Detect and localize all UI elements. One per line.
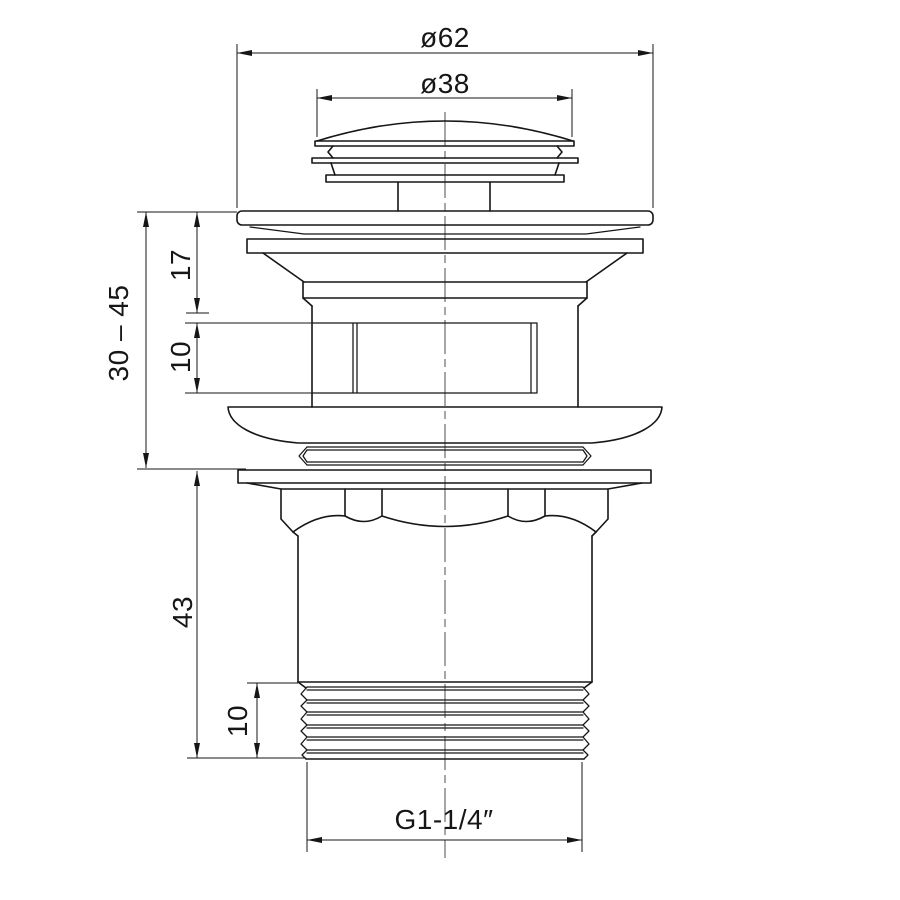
dim-label-10-slot: 10 [165,341,196,373]
drain-technical-drawing: ø62 ø38 30 – 45 17 10 43 [0,0,900,900]
dim-thread-spec: G1-1/4″ [307,762,582,852]
dim-label-dia62: ø62 [420,22,470,53]
dim-label-43: 43 [167,596,198,628]
dim-label-range: 30 – 45 [103,285,134,382]
dim-label-dia38: ø38 [420,68,470,99]
dim-label-17: 17 [165,249,196,281]
drawing-canvas: ø62 ø38 30 – 45 17 10 43 [0,0,900,900]
dim-label-thread-spec: G1-1/4″ [394,804,493,835]
dim-17: 17 [165,212,209,313]
dim-10-thread: 10 [222,683,298,758]
hex-nut-outline [238,470,651,536]
dim-label-10-thread: 10 [222,705,253,737]
dim-10-slot: 10 [165,323,312,393]
dim-dia38: ø38 [317,68,572,137]
